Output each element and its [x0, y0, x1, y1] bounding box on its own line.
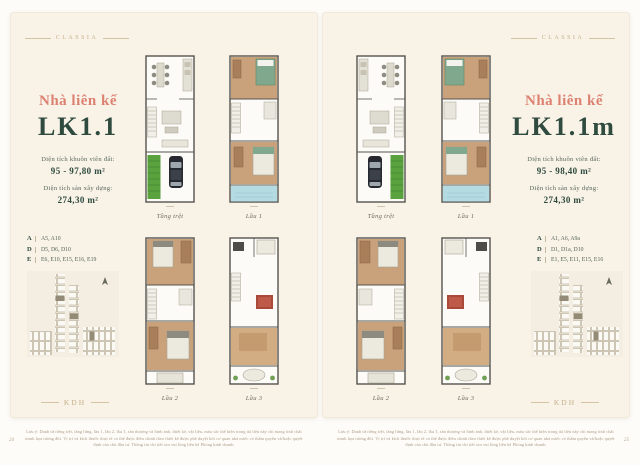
brand-name: CLASSIA — [56, 35, 99, 41]
dimension-mark — [377, 206, 385, 207]
legend-key: A — [537, 235, 545, 242]
floor-plan-level2: Lầu 2 — [145, 237, 195, 402]
legend-key: D — [537, 246, 545, 253]
page-number-left: 24 — [9, 438, 14, 443]
land-area-value: 95 - 98,40 m² — [503, 166, 625, 176]
disclaimer-left: Lưu ý: Danh từ riêng trệt, tầng lửng, lầ… — [22, 429, 306, 449]
land-area-label: Diện tích khuôn viên đất: — [17, 156, 139, 163]
unit-code: LK1.1m — [503, 112, 625, 142]
legend-key: E — [537, 256, 545, 263]
site-map-graphic — [531, 271, 623, 357]
floor-plan-level3: Lầu 3 — [229, 237, 279, 402]
floor-plan-level3: Lầu 3 — [441, 237, 491, 402]
ornament-line — [589, 38, 615, 39]
legend-values: D1, D1a, D10 — [545, 247, 584, 253]
legend-row: A A1, A6, A9a — [537, 235, 640, 242]
unit-type-title: Nhà liên kế — [17, 93, 139, 110]
legend-key: D — [27, 246, 35, 253]
site-map — [27, 271, 119, 362]
dimension-mark — [462, 388, 470, 389]
legend-values: E6, E10, E15, E16, E19 — [35, 257, 96, 263]
ornament-line — [25, 38, 51, 39]
land-area-value: 95 - 97,80 m² — [17, 166, 139, 176]
ornament-line — [103, 38, 129, 39]
gfa-value: 274,30 m² — [503, 195, 625, 205]
brand-name: CLASSIA — [542, 35, 585, 41]
legend-values: E1, E5, E11, E15, E16 — [545, 257, 603, 263]
logo-line — [41, 402, 59, 403]
legend-row: A A5, A10 — [27, 235, 137, 242]
unit-type-title: Nhà liên kế — [503, 93, 625, 110]
floor-plan-level1: Lầu 1 — [441, 55, 491, 220]
plan-caption: Lầu 1 — [229, 213, 279, 220]
floor-plan-level2-drawing — [356, 237, 406, 385]
floor-plan-ground: Tầng trệt — [356, 55, 406, 220]
floor-plan-level2-drawing — [145, 237, 195, 385]
site-map — [531, 271, 623, 362]
legend-key: A — [27, 235, 35, 242]
legend-row: D D1, D1a, D10 — [537, 246, 640, 253]
dimension-mark — [166, 388, 174, 389]
logo-line — [91, 402, 109, 403]
dimension-mark — [250, 206, 258, 207]
legend-row: E E1, E5, E11, E15, E16 — [537, 256, 640, 263]
plan-caption: Tầng trệt — [145, 213, 195, 220]
disclaimer-right: Lưu ý: Danh từ riêng trệt, tầng lửng, lầ… — [334, 429, 618, 449]
legend-values: A5, A10 — [35, 236, 61, 242]
gfa-value: 274,30 m² — [17, 195, 139, 205]
logo-line — [581, 402, 599, 403]
gfa-label: Diện tích sàn xây dựng: — [17, 185, 139, 192]
brochure-page-left: CLASSIA Nhà liên kế LK1.1 Diện tích khuô… — [10, 12, 318, 418]
plan-caption: Lầu 3 — [441, 395, 491, 402]
floor-plan-level1-drawing — [229, 55, 279, 203]
page-ornament: CLASSIA — [25, 35, 129, 41]
dimension-mark — [462, 206, 470, 207]
developer-logo: KDH — [25, 398, 125, 407]
floor-plan-level2: Lầu 2 — [356, 237, 406, 402]
plan-caption: Lầu 3 — [229, 395, 279, 402]
ornament-line — [511, 38, 537, 39]
plan-caption: Lầu 1 — [441, 213, 491, 220]
gfa-label: Diện tích sàn xây dựng: — [503, 185, 625, 192]
dimension-mark — [166, 206, 174, 207]
legend-key: E — [27, 256, 35, 263]
floor-plan-level1-drawing — [441, 55, 491, 203]
floor-plan-ground: Tầng trệt — [145, 55, 195, 220]
legend-row: E E6, E10, E15, E16, E19 — [27, 256, 137, 263]
unit-info-block: Nhà liên kế LK1.1 Diện tích khuôn viên đ… — [17, 93, 139, 205]
floor-plan-level3-drawing — [229, 237, 279, 385]
floor-plan-level3-drawing — [441, 237, 491, 385]
unit-code: LK1.1 — [17, 112, 139, 142]
developer-logo-text: KDH — [64, 398, 86, 407]
floor-plan-level1: Lầu 1 — [229, 55, 279, 220]
land-area-label: Diện tích khuôn viên đất: — [503, 156, 625, 163]
dimension-mark — [250, 388, 258, 389]
developer-logo-text: KDH — [554, 398, 576, 407]
legend-row: D D5, D6, D10 — [27, 246, 137, 253]
unit-info-block: Nhà liên kế LK1.1m Diện tích khuôn viên … — [503, 93, 625, 205]
legend-values: A1, A6, A9a — [545, 236, 580, 242]
floor-plan-ground-drawing — [356, 55, 406, 203]
plan-caption: Lầu 2 — [145, 395, 195, 402]
legend-values: D5, D6, D10 — [35, 247, 71, 253]
plan-caption: Tầng trệt — [356, 213, 406, 220]
logo-line — [531, 402, 549, 403]
page-ornament: CLASSIA — [511, 35, 615, 41]
page-number-right: 25 — [624, 438, 629, 443]
developer-logo: KDH — [515, 398, 615, 407]
site-map-graphic — [27, 271, 119, 357]
brochure-page-right: CLASSIA Nhà liên kế LK1.1m Diện tích khu… — [322, 12, 630, 418]
plan-caption: Lầu 2 — [356, 395, 406, 402]
dimension-mark — [377, 388, 385, 389]
lot-legend: A A1, A6, A9a D D1, D1a, D10 E E1, E5, E… — [537, 235, 640, 267]
lot-legend: A A5, A10 D D5, D6, D10 E E6, E10, E15, … — [27, 235, 137, 267]
floor-plan-ground-drawing — [145, 55, 195, 203]
